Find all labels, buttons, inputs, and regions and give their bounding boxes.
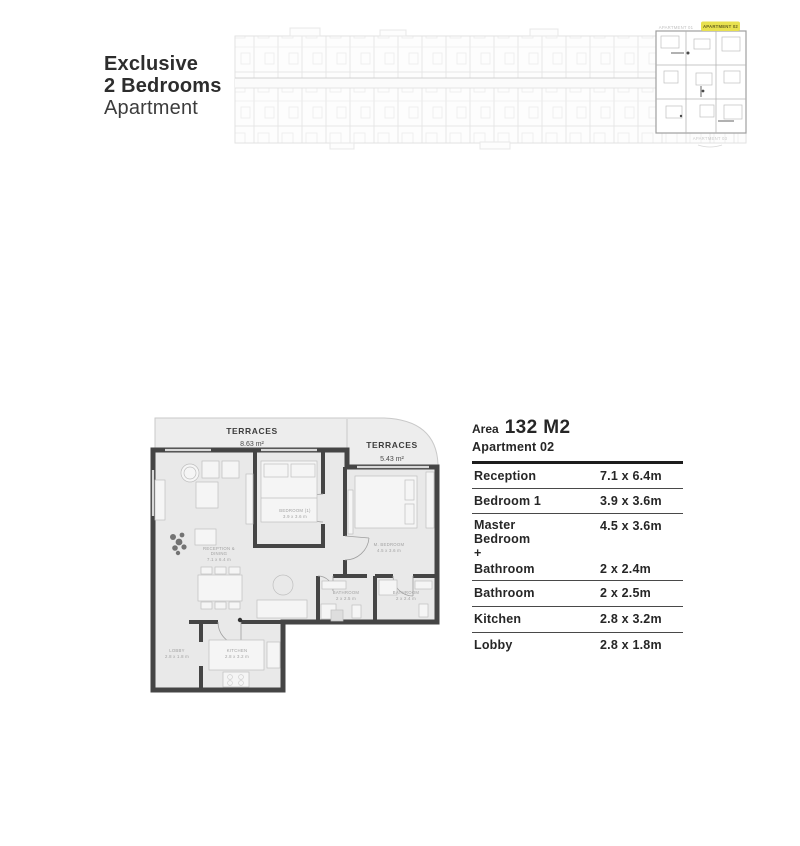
table-row: Kitchen 2.8 x 3.2m <box>472 607 683 633</box>
bathroom2-dims: 2 x 2.4 m <box>396 596 416 601</box>
bedroom1-dims: 3.9 x 3.6 m <box>283 514 307 519</box>
row-label: Kitchen <box>474 612 521 626</box>
row-label: Master Bedroom + <box>474 518 530 560</box>
sofa-left <box>155 480 165 520</box>
row-value: 2.8 x 3.2m <box>600 612 662 626</box>
master-dims: 4.5 x 3.6 m <box>377 548 401 553</box>
bedroom1-label: BEDROOM (1) <box>279 508 311 513</box>
dining-table <box>198 575 242 601</box>
title-line-3: Apartment <box>104 97 222 119</box>
area-label: Area <box>472 422 499 436</box>
masterplan-label-apartment-01: APARTMENT 01 <box>659 25 694 30</box>
row-label: Lobby <box>474 638 513 652</box>
row-value: 2.8 x 1.8m <box>600 638 662 652</box>
table-row: Reception 7.1 x 6.4m <box>472 464 683 489</box>
coffee-table <box>196 482 218 508</box>
kitchen-dims: 2.8 x 3.2 m <box>225 654 249 659</box>
row-sublabel: Bathroom <box>474 562 535 576</box>
wardrobe <box>246 474 253 524</box>
bath2-toilet <box>419 604 428 617</box>
terrace-right-name: TERRACES <box>366 440 418 450</box>
terrace-left-area: 8.63 m² <box>240 441 264 448</box>
area-value: 132 M2 <box>505 417 571 439</box>
kitchen-counter <box>267 642 280 668</box>
bath2-sink <box>415 581 432 589</box>
masterplan-label-underline <box>698 145 722 147</box>
details-table: Area 132 M2 Apartment 02 Reception 7.1 x… <box>472 417 683 656</box>
page-title: Exclusive 2 Bedrooms Apartment <box>104 53 222 119</box>
reception-dims: 7.1 x 6.4 m <box>207 557 231 562</box>
armchair <box>195 529 216 545</box>
bath1-sink <box>322 581 346 589</box>
master-wardrobe <box>426 472 434 528</box>
apartment-floorplan: TERRACES 8.63 m² TERRACES 5.43 m² <box>149 404 449 696</box>
sofa-bottom <box>257 600 307 618</box>
table-row: Bathroom 2 x 2.5m <box>472 581 683 607</box>
row-value: 3.9 x 3.6m <box>600 494 662 508</box>
lobby-label: LOBBY <box>169 648 185 653</box>
reception-label-2: DINING <box>211 551 228 556</box>
row-value: 7.1 x 6.4m <box>600 469 662 483</box>
row-subvalue: 2 x 2.4m <box>600 562 651 576</box>
table-row-master-group: Master Bedroom + 4.5 x 3.6m Bathroom 2 x… <box>472 514 683 581</box>
lobby-dims: 2.8 x 1.8 m <box>165 654 189 659</box>
masterplan-label-apartment-02: APARTMENT 02 <box>703 24 738 29</box>
bathroom1-label: BATHROOM <box>333 590 360 595</box>
stove <box>223 672 249 687</box>
page-canvas: Exclusive 2 Bedrooms Apartment <box>0 0 800 846</box>
table-row: Lobby 2.8 x 1.8m <box>472 633 683 656</box>
terrace-left-name: TERRACES <box>226 426 278 436</box>
title-line-2: 2 Bedrooms <box>104 75 222 97</box>
terrace-right-area: 5.43 m² <box>380 456 404 463</box>
title-line-1: Exclusive <box>104 53 222 75</box>
master-label: M. BEDROOM <box>374 542 405 547</box>
table-row: Bedroom 1 3.9 x 3.6m <box>472 489 683 514</box>
bathroom1-dims: 2 x 2.5 m <box>336 596 356 601</box>
masterplan-label-apartment-03: APARTMENT 03 <box>693 136 728 141</box>
building-masterplan: APARTMENT 01 APARTMENT 02 APARTMENT 03 <box>230 18 750 153</box>
bath1-toilet <box>352 605 361 618</box>
bathroom2-label: BATHROOM <box>393 590 420 595</box>
row-value: 4.5 x 3.6m <box>600 519 662 533</box>
row-label: Bedroom 1 <box>474 494 541 508</box>
apartment-number: Apartment 02 <box>472 440 683 454</box>
masterplan-current-section <box>656 31 746 133</box>
row-label: Reception <box>474 469 536 483</box>
area-line: Area 132 M2 <box>472 417 683 439</box>
kitchen-label: KITCHEN <box>227 648 248 653</box>
washer <box>331 610 343 621</box>
row-value: 2 x 2.5m <box>600 586 651 600</box>
row-label: Bathroom <box>474 586 535 600</box>
entrance-door-hinge <box>238 618 242 622</box>
